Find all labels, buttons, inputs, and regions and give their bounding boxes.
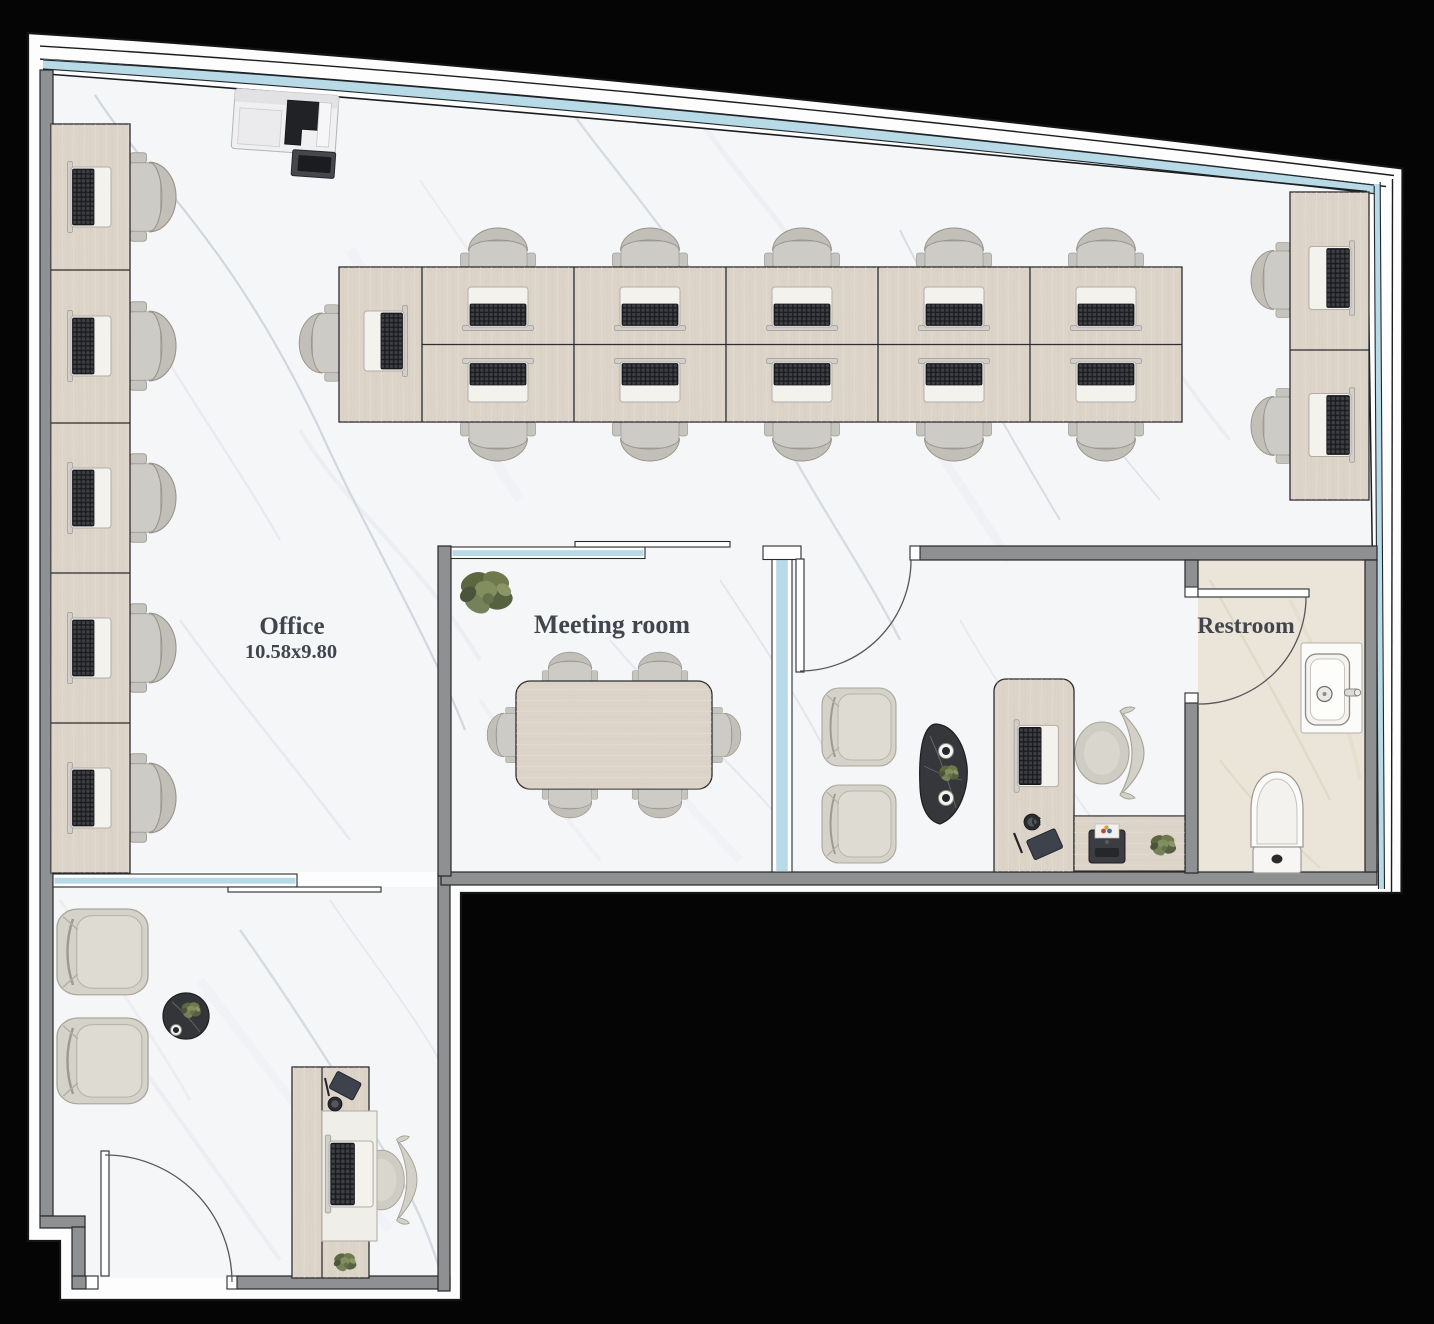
svg-text:10.58x9.80: 10.58x9.80 [245, 641, 337, 663]
svg-text:Meeting room: Meeting room [534, 610, 691, 639]
svg-text:Office: Office [259, 613, 324, 640]
svg-text:Restroom: Restroom [1197, 613, 1295, 639]
